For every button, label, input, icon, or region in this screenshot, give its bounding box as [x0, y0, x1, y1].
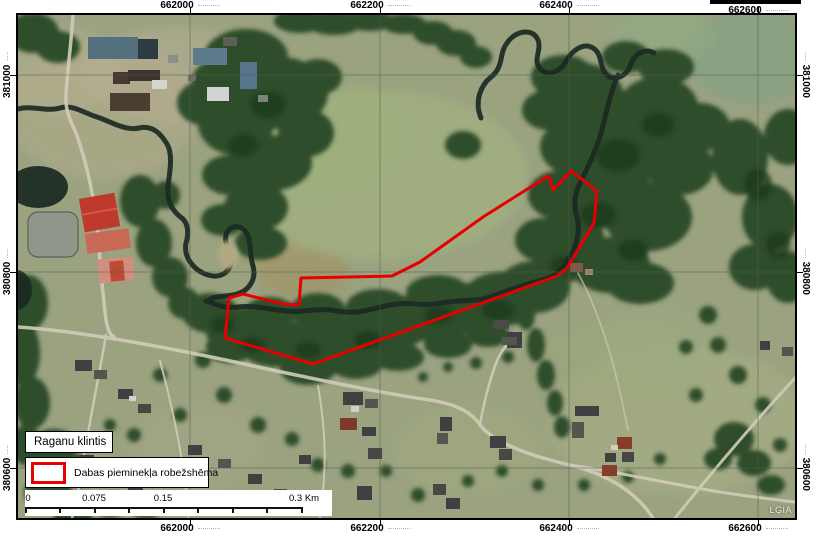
scalebar-label-0: 0 [23, 493, 33, 504]
neatline-bar [710, 0, 801, 4]
scalebar-label-2: 0.15 [149, 493, 177, 504]
map-export: Raganu klintis Dabas pieminekļa robežshē… [0, 0, 817, 538]
scalebar-tick [232, 507, 234, 513]
dotted-trail [577, 5, 599, 6]
grid-label-bottom: 662600 [728, 523, 788, 534]
dotted-trail [7, 249, 8, 258]
grid-label-left: 381000 [1, 52, 13, 98]
scalebar-label-1: 0.075 [77, 493, 111, 504]
grid-label-right: 380600 [800, 445, 812, 491]
dotted-trail [7, 52, 8, 61]
grid-label-bottom: 662200 [350, 523, 410, 534]
legend-item-label: Dabas pieminekļa robežshēma [74, 467, 218, 479]
dotted-trail [198, 528, 220, 529]
grid-label-top: 662400 [539, 0, 599, 11]
dotted-trail [806, 249, 807, 258]
dotted-trail [766, 10, 788, 11]
scalebar-label-3: 0.3 Km [289, 493, 332, 504]
grid-label-right: 381000 [800, 52, 812, 98]
scalebar-tick [163, 507, 165, 513]
dotted-trail [388, 528, 410, 529]
dotted-trail [806, 445, 807, 454]
scalebar-tick [197, 507, 199, 513]
scalebar-tick [94, 507, 96, 513]
scalebar-tick [25, 507, 27, 513]
grid-label-left: 380600 [1, 445, 13, 491]
dotted-trail [198, 5, 220, 6]
scalebar-tick [128, 507, 130, 513]
grid-label-bottom: 662400 [539, 523, 599, 534]
grid-label-right: 380800 [800, 249, 812, 295]
grid-label-left: 380800 [1, 249, 13, 295]
grid-label-bottom: 662000 [160, 523, 220, 534]
scalebar-tick [266, 507, 268, 513]
monument-boundary-polygon [225, 171, 597, 364]
grid-label-top: 662600 [728, 5, 788, 16]
legend: Dabas pieminekļa robežshēma [25, 457, 209, 488]
dotted-trail [766, 528, 788, 529]
dotted-trail [577, 528, 599, 529]
scalebar-tick [59, 507, 61, 513]
scalebar-tick [301, 507, 303, 513]
map-credit: LĢIA [769, 505, 792, 515]
boundary-legend-symbol [31, 462, 66, 484]
boundary-layer [18, 15, 795, 518]
map-canvas: Raganu klintis Dabas pieminekļa robežshē… [16, 13, 797, 520]
grid-label-top: 662200 [350, 0, 410, 11]
dotted-trail [388, 5, 410, 6]
map-title-box: Raganu klintis [25, 431, 113, 453]
scalebar: 0 0.075 0.15 0.3 Km [25, 490, 332, 516]
dotted-trail [7, 445, 8, 454]
grid-label-top: 662000 [160, 0, 220, 11]
dotted-trail [806, 52, 807, 61]
map-title: Raganu klintis [34, 436, 106, 448]
